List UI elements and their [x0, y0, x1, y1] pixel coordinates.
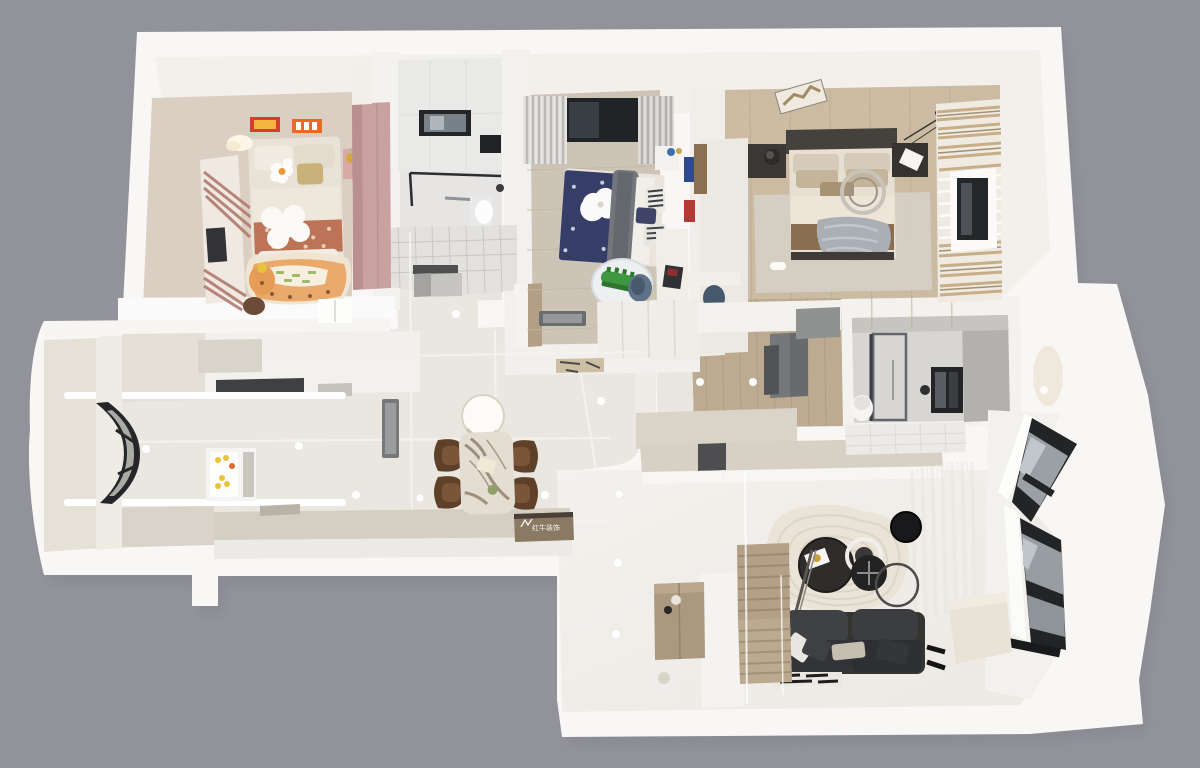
svg-text:红牛装饰: 红牛装饰	[532, 523, 560, 532]
